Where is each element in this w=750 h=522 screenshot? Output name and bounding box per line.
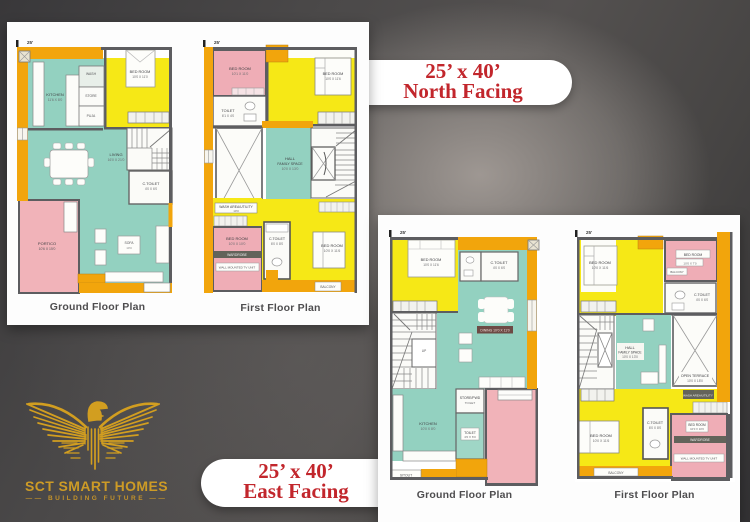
svg-text:LIVING: LIVING bbox=[109, 152, 122, 157]
svg-text:25': 25' bbox=[214, 40, 220, 45]
svg-text:25': 25' bbox=[27, 40, 33, 45]
svg-text:WARDROBE: WARDROBE bbox=[227, 253, 248, 257]
svg-text:10'0 X 7'0: 10'0 X 7'0 bbox=[683, 262, 696, 266]
svg-text:OPEN TERRACE: OPEN TERRACE bbox=[681, 374, 710, 378]
svg-text:PORTICO: PORTICO bbox=[38, 241, 56, 246]
svg-text:C.TOILET: C.TOILET bbox=[694, 293, 711, 297]
svg-text:10'0 X 11'6: 10'0 X 11'6 bbox=[325, 77, 341, 81]
svg-text:BED ROOM: BED ROOM bbox=[226, 236, 248, 241]
svg-text:BED ROOM: BED ROOM bbox=[130, 70, 151, 74]
svg-text:10'0 X 11'0: 10'0 X 11'0 bbox=[132, 75, 148, 79]
svg-text:6'0 X 8'0: 6'0 X 8'0 bbox=[271, 242, 283, 246]
svg-text:TOILET: TOILET bbox=[465, 401, 476, 405]
svg-text:6'0 X 8'0: 6'0 X 8'0 bbox=[649, 426, 661, 430]
svg-text:HALL: HALL bbox=[625, 346, 635, 350]
svg-text:SITOUT: SITOUT bbox=[400, 474, 412, 478]
svg-text:BALCONY: BALCONY bbox=[608, 471, 624, 475]
svg-text:10'0 X 13'0: 10'0 X 13'0 bbox=[282, 167, 299, 171]
svg-text:PUJA: PUJA bbox=[87, 114, 96, 118]
svg-text:C.TOILET: C.TOILET bbox=[269, 237, 286, 241]
svg-text:10'0: 10'0 bbox=[126, 246, 132, 250]
svg-text:4'0 X 6'0: 4'0 X 6'0 bbox=[493, 266, 505, 270]
svg-text:WALL MOUNTED TV UNIT: WALL MOUNTED TV UNIT bbox=[681, 457, 718, 461]
svg-text:10'0 X 8'0: 10'0 X 8'0 bbox=[421, 427, 436, 431]
svg-text:10'0 X 13'0: 10'0 X 13'0 bbox=[622, 355, 638, 359]
svg-text:UP: UP bbox=[422, 349, 426, 353]
svg-text:KITCHEN: KITCHEN bbox=[46, 92, 64, 97]
svg-text:TOILET: TOILET bbox=[221, 109, 235, 113]
svg-text:4'0 X 6'0: 4'0 X 6'0 bbox=[464, 435, 476, 439]
svg-text:BED ROOM: BED ROOM bbox=[321, 243, 343, 248]
svg-text:FAMILY SPACE: FAMILY SPACE bbox=[618, 351, 642, 355]
svg-text:C.TOILET: C.TOILET bbox=[490, 261, 508, 265]
svg-text:KITCHEN: KITCHEN bbox=[419, 421, 437, 426]
svg-text:10'0 X 10'0: 10'0 X 10'0 bbox=[229, 242, 246, 246]
svg-text:25': 25' bbox=[400, 230, 406, 235]
svg-text:10'0 X 11'6: 10'0 X 11'6 bbox=[423, 263, 439, 267]
svg-text:BED ROOM: BED ROOM bbox=[229, 66, 251, 71]
svg-text:10'0 X 11'6: 10'0 X 11'6 bbox=[592, 266, 609, 270]
svg-text:WASH AREA/UTILITY: WASH AREA/UTILITY bbox=[683, 394, 713, 398]
svg-text:BALCONY: BALCONY bbox=[670, 270, 684, 274]
svg-text:6'1 X 4'0: 6'1 X 4'0 bbox=[222, 114, 234, 118]
svg-text:BED ROOM: BED ROOM bbox=[421, 258, 442, 262]
svg-text:HALL: HALL bbox=[285, 156, 296, 161]
svg-text:4'0 X 6'0: 4'0 X 6'0 bbox=[145, 187, 157, 191]
svg-text:16'0 X 21'0: 16'0 X 21'0 bbox=[108, 158, 125, 162]
svg-text:10'0 X 11'6: 10'0 X 11'6 bbox=[593, 439, 610, 443]
svg-text:SOFA: SOFA bbox=[124, 241, 134, 245]
svg-text:STORE/PWD: STORE/PWD bbox=[460, 396, 481, 400]
svg-text:WASH: WASH bbox=[86, 72, 97, 76]
svg-text:BED ROOM: BED ROOM bbox=[589, 260, 611, 265]
svg-text:C.TOILET: C.TOILET bbox=[142, 182, 160, 186]
svg-text:DINING 10'0 X 11'0: DINING 10'0 X 11'0 bbox=[480, 329, 509, 333]
svg-text:10'0 X 11'6: 10'0 X 11'6 bbox=[324, 249, 341, 253]
svg-text:C.TOILET: C.TOILET bbox=[647, 421, 664, 425]
svg-text:10'0: 10'0 bbox=[233, 209, 239, 213]
svg-text:FAMILY SPACE: FAMILY SPACE bbox=[277, 162, 303, 166]
svg-text:10'1 X 11'0: 10'1 X 11'0 bbox=[232, 72, 249, 76]
svg-text:10'0 X 10'0: 10'0 X 10'0 bbox=[690, 427, 704, 431]
svg-text:11'6 X 8'0: 11'6 X 8'0 bbox=[48, 98, 63, 102]
svg-text:BALCONY: BALCONY bbox=[320, 285, 336, 289]
svg-text:WARDROBE: WARDROBE bbox=[690, 438, 711, 442]
svg-text:10'0 X 18'0: 10'0 X 18'0 bbox=[687, 379, 703, 383]
svg-text:10'6 X 15'0: 10'6 X 15'0 bbox=[39, 247, 56, 251]
svg-text:BED ROOM: BED ROOM bbox=[590, 433, 612, 438]
svg-text:WALL MOUNTED TV UNIT: WALL MOUNTED TV UNIT bbox=[219, 266, 256, 270]
svg-text:BED ROOM: BED ROOM bbox=[684, 253, 703, 257]
svg-text:STORE: STORE bbox=[85, 94, 97, 98]
svg-text:25': 25' bbox=[586, 230, 592, 235]
svg-text:BED ROOM: BED ROOM bbox=[323, 72, 344, 76]
svg-text:4'0 X 6'0: 4'0 X 6'0 bbox=[696, 298, 708, 302]
